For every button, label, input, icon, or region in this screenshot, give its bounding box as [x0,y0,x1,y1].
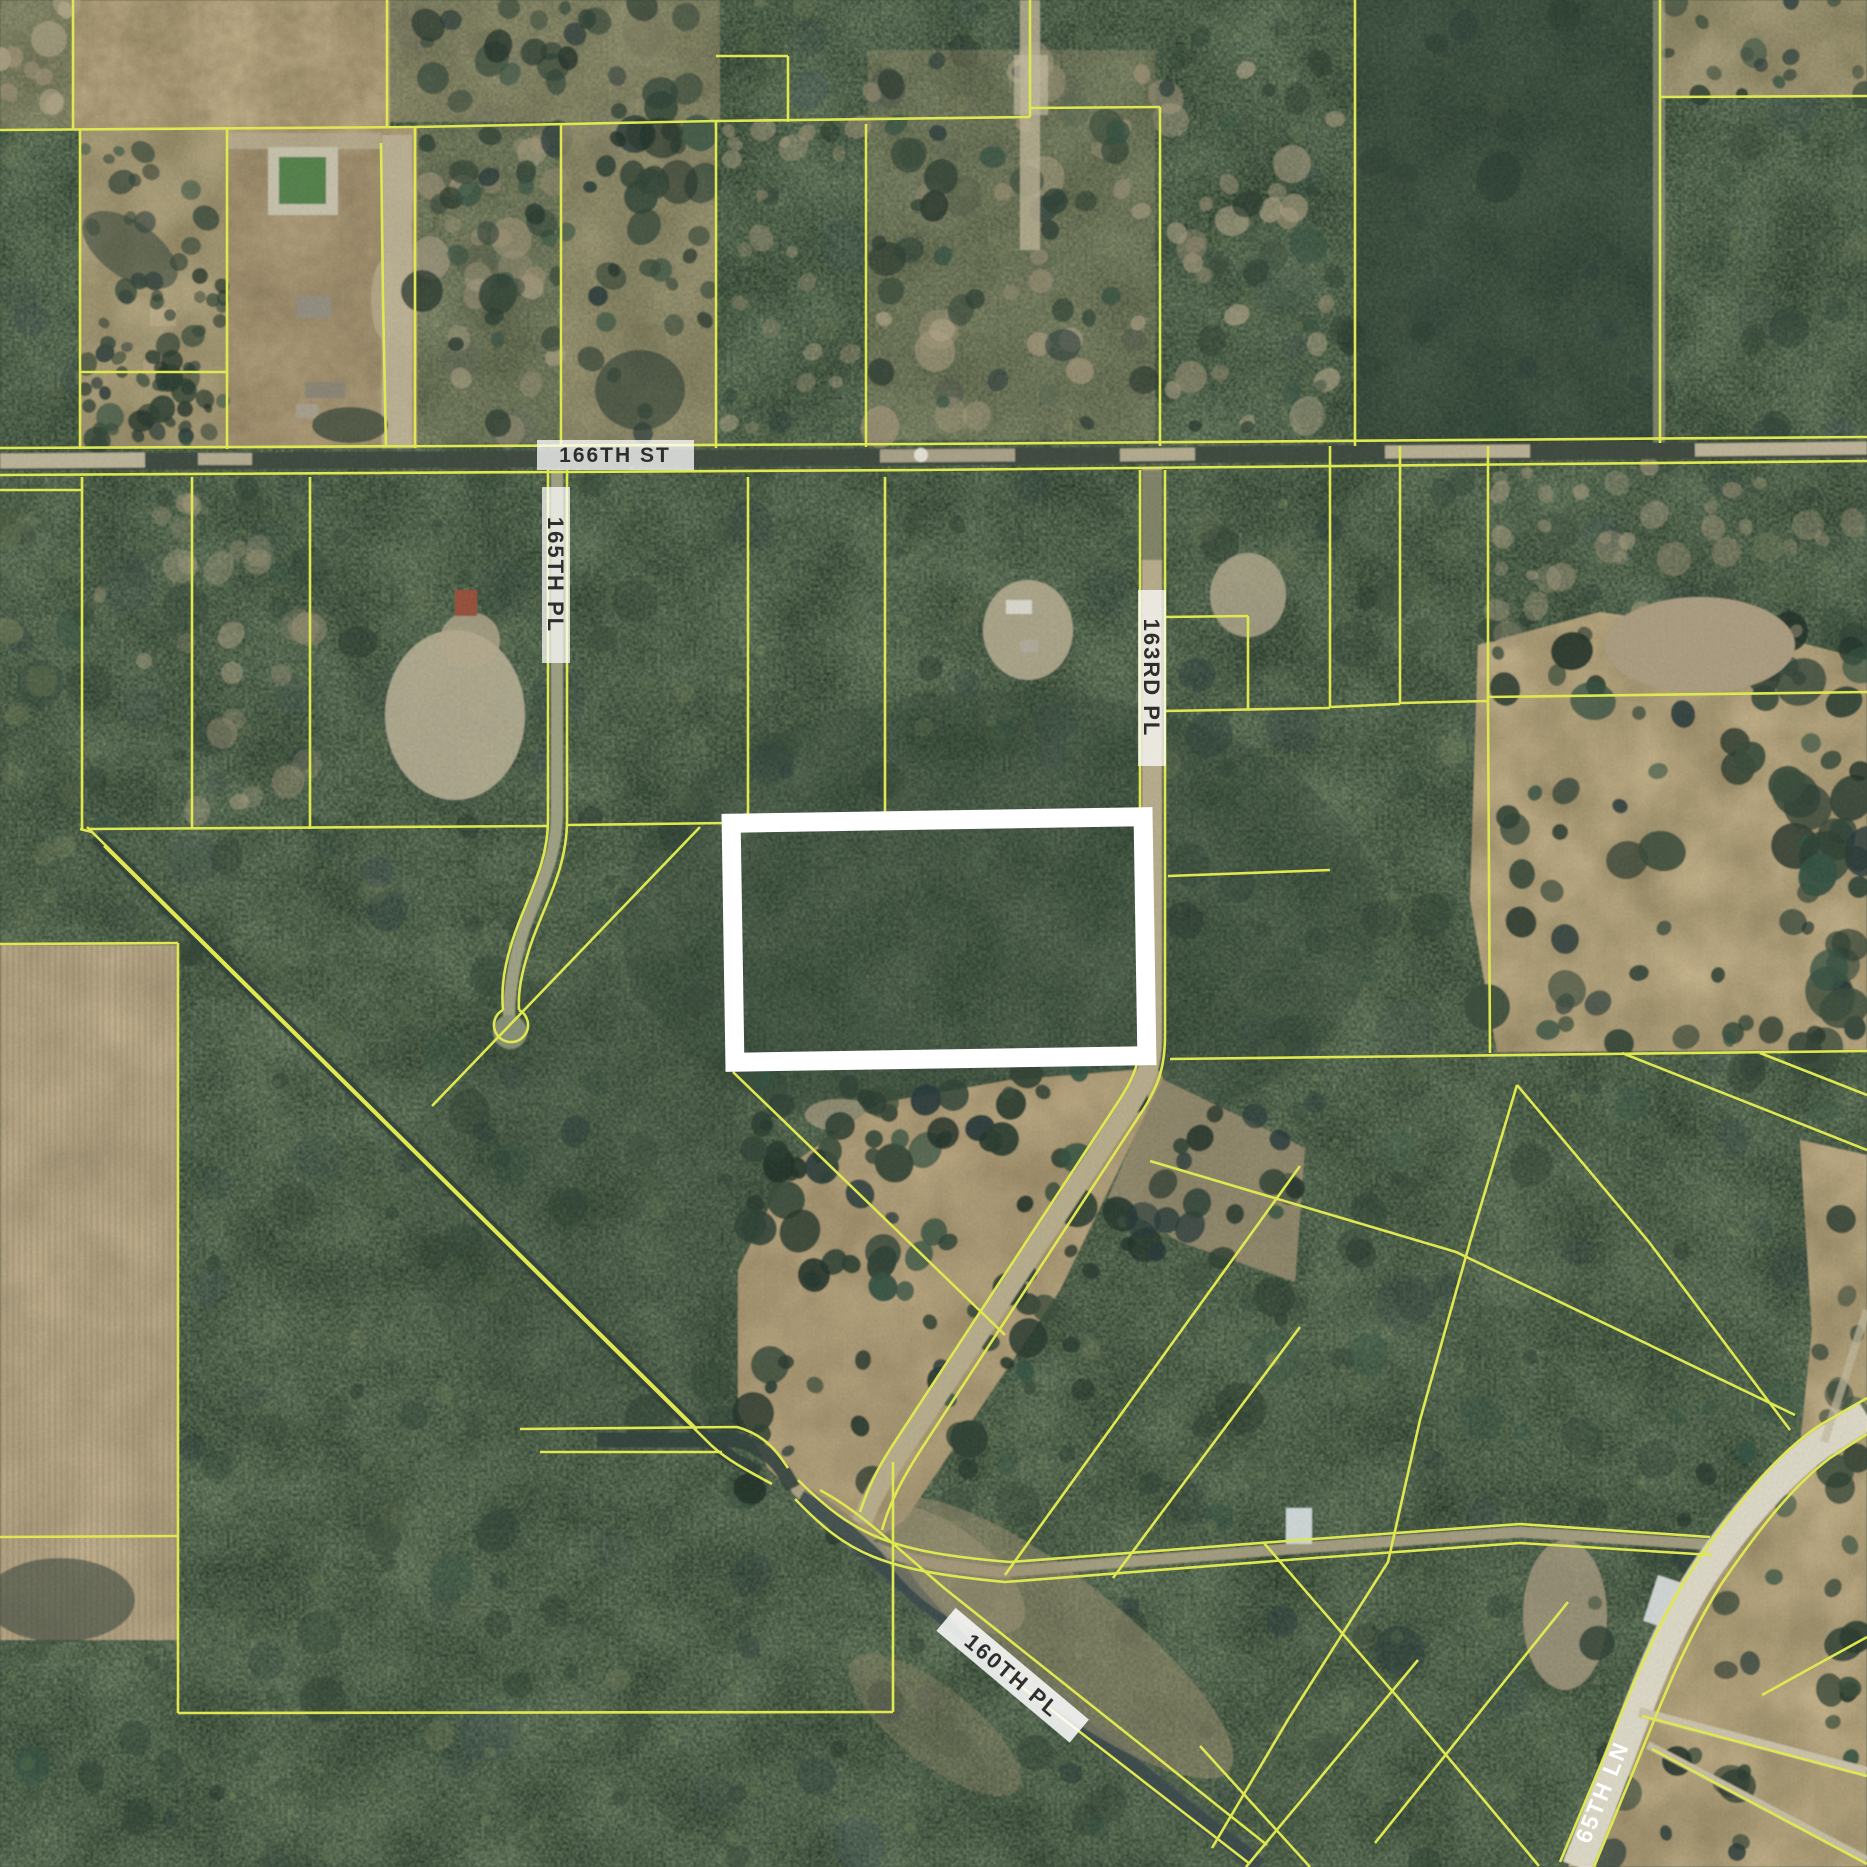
svg-text:163RD PL: 163RD PL [1139,619,1164,738]
svg-text:165TH PL: 165TH PL [543,517,568,633]
svg-text:166TH ST: 166TH ST [559,444,671,467]
